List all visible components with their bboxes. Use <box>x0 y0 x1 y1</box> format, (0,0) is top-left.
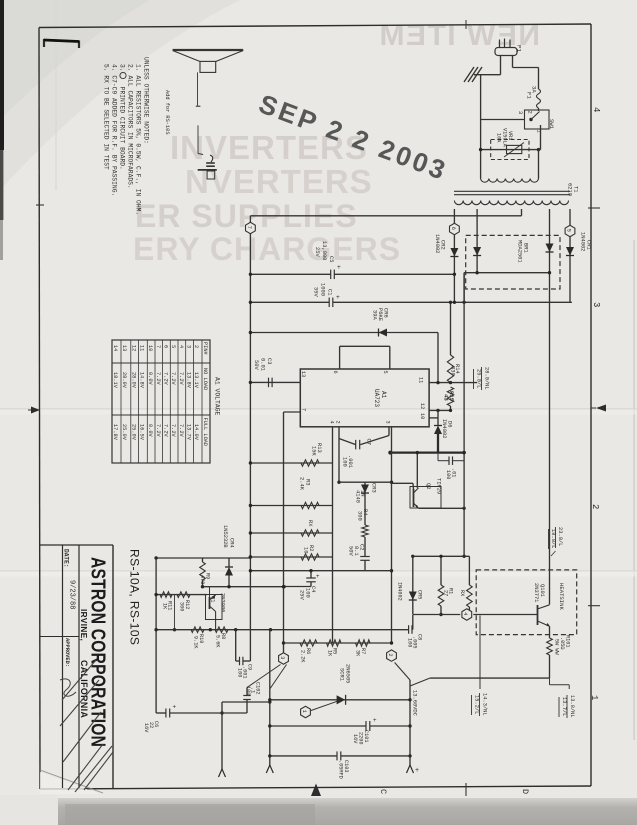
svg-text:14: 14 <box>112 345 118 351</box>
svg-text:18.1V: 18.1V <box>112 372 118 389</box>
svg-text:13.8V: 13.8V <box>186 372 192 389</box>
svg-text:4. C7-C9 ADDED FOR R.F. BY PAS: 4. C7-C9 ADDED FOR R.F. BY PASSING. <box>111 64 118 196</box>
svg-text:IN4002: IN4002 <box>397 582 403 601</box>
svg-text:5: 5 <box>382 371 388 374</box>
svg-text:APPROVED:: APPROVED: <box>64 638 70 667</box>
svg-text:12: 12 <box>419 403 425 409</box>
svg-text:1K: 1K <box>327 650 333 657</box>
svg-text:3A: 3A <box>531 86 538 93</box>
svg-text:7.2V: 7.2V <box>155 424 161 438</box>
svg-text:F1: F1 <box>526 92 533 99</box>
svg-text:CALIFORNIA: CALIFORNIA <box>79 660 89 718</box>
svg-text:2: 2 <box>527 111 533 114</box>
svg-text:50V: 50V <box>253 360 259 370</box>
svg-text:7.2V: 7.2V <box>155 372 161 386</box>
svg-text:1N4002: 1N4002 <box>434 234 440 253</box>
svg-text:SCR1: SCR1 <box>339 668 345 681</box>
svg-text:100: 100 <box>237 668 243 677</box>
svg-text:PIN#: PIN# <box>202 342 208 356</box>
svg-text:3: 3 <box>186 345 192 348</box>
svg-text:FULL LOAD: FULL LOAD <box>202 418 208 447</box>
svg-text:25V: 25V <box>299 590 305 600</box>
svg-text:2: 2 <box>590 504 600 509</box>
svg-text:13.8/NL: 13.8/NL <box>569 695 575 718</box>
svg-text:43: 43 <box>443 394 450 401</box>
svg-text:25V: 25V <box>314 247 320 257</box>
svg-text:6: 6 <box>332 371 338 374</box>
svg-text:4: 4 <box>591 107 601 112</box>
svg-text:0.0V: 0.0V <box>147 424 153 438</box>
svg-text:T1: T1 <box>573 186 579 192</box>
svg-text:7: 7 <box>301 408 307 411</box>
svg-text:ERY CHARGERS: ERY CHARGERS <box>133 231 401 267</box>
svg-text:5W WW: 5W WW <box>554 639 560 655</box>
svg-text:2: 2 <box>387 653 393 656</box>
svg-text:CR4: CR4 <box>229 538 235 548</box>
svg-text:7.2V: 7.2V <box>170 424 176 438</box>
svg-text:A1 VOLTAGE: A1 VOLTAGE <box>214 377 221 416</box>
svg-text:RX: RX <box>307 520 313 527</box>
svg-text:NVERTERS: NVERTERS <box>185 163 373 200</box>
svg-text:50V: 50V <box>348 546 354 556</box>
svg-text:1K: 1K <box>162 603 168 610</box>
svg-text:330: 330 <box>450 366 456 376</box>
svg-text:D: D <box>520 789 530 794</box>
svg-text:Add for RS-10S: Add for RS-10S <box>164 90 170 135</box>
svg-text:2.4K: 2.4K <box>299 477 305 491</box>
svg-text:100: 100 <box>342 457 348 467</box>
svg-text:13.60VDC: 13.60VDC <box>412 690 418 716</box>
svg-text:9/23/88: 9/23/88 <box>68 580 76 609</box>
svg-text:28.0/NL: 28.0/NL <box>484 367 490 390</box>
svg-text:2N3771: 2N3771 <box>533 583 539 602</box>
svg-text:15K: 15K <box>311 446 317 456</box>
svg-text:ASTRON CORPORATION: ASTRON CORPORATION <box>87 557 109 747</box>
svg-text:7.2V: 7.2V <box>163 424 169 438</box>
svg-text:4: 4 <box>462 612 468 615</box>
svg-text:UA723: UA723 <box>373 389 380 407</box>
svg-text:4: 4 <box>329 421 335 424</box>
svg-text:MDA2501: MDA2501 <box>517 240 523 263</box>
svg-text:10A: 10A <box>496 133 502 143</box>
svg-text:300: 300 <box>179 602 185 611</box>
svg-text:5.6K: 5.6K <box>215 635 221 648</box>
svg-text:3: 3 <box>385 421 391 424</box>
svg-text:6210: 6210 <box>567 183 573 196</box>
svg-text:+: + <box>336 294 340 301</box>
svg-text:C: C <box>378 789 388 794</box>
svg-text:1N4002: 1N4002 <box>580 232 586 251</box>
svg-text:11: 11 <box>418 377 424 383</box>
svg-text:.05MFD: .05MFD <box>338 760 344 779</box>
svg-text:35V: 35V <box>313 287 319 297</box>
svg-text:7.2V: 7.2V <box>170 372 176 386</box>
svg-text:CR1: CR1 <box>586 240 592 250</box>
svg-text:10: 10 <box>303 547 309 553</box>
svg-text:0.0V: 0.0V <box>147 372 153 386</box>
svg-text:1. ALL RESISTORS 5%, 0.5W, C.F: 1. ALL RESISTORS 5%, 0.5W, C.F., IN OHM. <box>135 64 142 215</box>
svg-text:14.0V: 14.0V <box>193 424 199 441</box>
svg-text:3K: 3K <box>355 650 361 657</box>
svg-text:15.2/L: 15.2/L <box>474 695 480 714</box>
svg-text:HEATSINK: HEATSINK <box>558 583 565 610</box>
svg-text:7.2V: 7.2V <box>178 424 184 438</box>
svg-text:1000: 1000 <box>320 283 326 296</box>
svg-text:3: 3 <box>517 111 523 114</box>
svg-text:1N5232B: 1N5232B <box>222 525 228 548</box>
svg-text:+: + <box>373 718 377 724</box>
svg-text:CR3: CR3 <box>371 483 377 493</box>
svg-text:13,000: 13,000 <box>321 241 327 260</box>
svg-text:+: + <box>415 767 419 774</box>
svg-text:7: 7 <box>155 345 161 348</box>
svg-text:28.0V: 28.0V <box>121 372 127 389</box>
svg-text:470: 470 <box>199 575 205 584</box>
svg-text:DATE:: DATE: <box>63 549 70 568</box>
svg-text:7.2V: 7.2V <box>163 372 169 386</box>
svg-text:CR5: CR5 <box>417 590 423 599</box>
svg-text:25.0V: 25.0V <box>121 424 127 441</box>
svg-text:300: 300 <box>357 511 363 521</box>
svg-text:IN4002: IN4002 <box>441 419 447 438</box>
svg-text:Q1: Q1 <box>210 596 216 602</box>
svg-text:4: 4 <box>178 345 184 348</box>
svg-text:+: + <box>337 264 341 271</box>
svg-text:2: 2 <box>335 421 341 424</box>
svg-text:10: 10 <box>419 413 425 419</box>
svg-text:3: 3 <box>279 656 285 659</box>
svg-text:10: 10 <box>147 345 153 351</box>
svg-text:7: 7 <box>246 226 252 229</box>
svg-text:P1: P1 <box>516 45 523 52</box>
svg-text:A1: A1 <box>380 391 387 399</box>
svg-text:18.0/L: 18.0/L <box>550 529 556 548</box>
svg-text:5: 5 <box>170 345 176 348</box>
svg-text:Q2: Q2 <box>425 483 431 489</box>
svg-text:5. RX TO BE SELECTED IN TEST: 5. RX TO BE SELECTED IN TEST <box>103 64 110 170</box>
svg-text:NO LOAD: NO LOAD <box>202 368 208 390</box>
svg-text:2N3906: 2N3906 <box>220 593 226 612</box>
svg-text:IRVINE,: IRVINE, <box>79 609 88 641</box>
svg-text:13: 13 <box>121 345 127 351</box>
svg-text:TIP29: TIP29 <box>436 478 442 494</box>
svg-text:13: 13 <box>300 371 306 377</box>
svg-text:UNLESS OTHERWISE NOTED:: UNLESS OTHERWISE NOTED: <box>143 57 150 144</box>
svg-text:RX: RX <box>459 590 465 597</box>
svg-text:14.8V: 14.8V <box>139 372 145 389</box>
svg-text:100: 100 <box>407 638 413 647</box>
svg-text:C3: C3 <box>266 358 272 364</box>
svg-text:1: 1 <box>589 695 599 700</box>
svg-text:+: + <box>173 705 177 711</box>
svg-text:16V: 16V <box>352 734 358 744</box>
svg-text:2: 2 <box>193 345 199 348</box>
svg-text:6: 6 <box>163 345 169 348</box>
svg-text:11: 11 <box>139 345 145 351</box>
svg-text:1: 1 <box>536 130 542 133</box>
svg-text:3: 3 <box>591 302 601 307</box>
svg-text:14.3/NL: 14.3/NL <box>482 693 488 716</box>
svg-text:0.01: 0.01 <box>260 358 266 371</box>
svg-text:13.7V: 13.7V <box>186 424 192 441</box>
svg-text:6: 6 <box>450 227 456 230</box>
svg-text:+: + <box>316 574 320 580</box>
svg-text:25.0V: 25.0V <box>131 424 137 441</box>
svg-text:23.0/L: 23.0/L <box>557 527 563 546</box>
svg-text:12: 12 <box>131 345 137 351</box>
svg-text:13.1V: 13.1V <box>193 372 199 389</box>
svg-text:39A: 39A <box>372 310 378 320</box>
svg-text:100: 100 <box>245 686 251 695</box>
svg-text:9.1K: 9.1K <box>193 636 199 649</box>
svg-text:13.7/L: 13.7/L <box>561 697 567 716</box>
svg-text:7.2V: 7.2V <box>178 372 184 386</box>
svg-text:28.0V: 28.0V <box>131 372 137 389</box>
svg-text:2.2K: 2.2K <box>300 650 306 663</box>
svg-text:C5: C5 <box>328 256 334 262</box>
svg-text:100: 100 <box>445 470 451 479</box>
svg-text:5: 5 <box>565 229 571 232</box>
svg-text:1: 1 <box>301 710 307 713</box>
svg-text:RS-10A, RS-10S: RS-10A, RS-10S <box>128 549 142 645</box>
svg-text:16V: 16V <box>143 723 149 733</box>
svg-text:25.0/L: 25.0/L <box>476 369 482 388</box>
svg-text:SW1: SW1 <box>548 119 555 130</box>
svg-text:3. PRINTED CIRCUIT BOARD.: 3. PRINTED CIRCUIT BOARD. <box>119 64 126 170</box>
svg-text:17.8V: 17.8V <box>112 424 118 441</box>
svg-text:4148: 4148 <box>355 490 361 503</box>
svg-text:27: 27 <box>443 590 449 596</box>
svg-text:2. ALL CAPACITORS IN MICROFARA: 2. ALL CAPACITORS IN MICROFARADS. <box>127 64 134 189</box>
svg-text:C7: C7 <box>366 439 372 445</box>
svg-text:C1: C1 <box>327 289 333 295</box>
svg-text:16.5V: 16.5V <box>139 424 145 441</box>
